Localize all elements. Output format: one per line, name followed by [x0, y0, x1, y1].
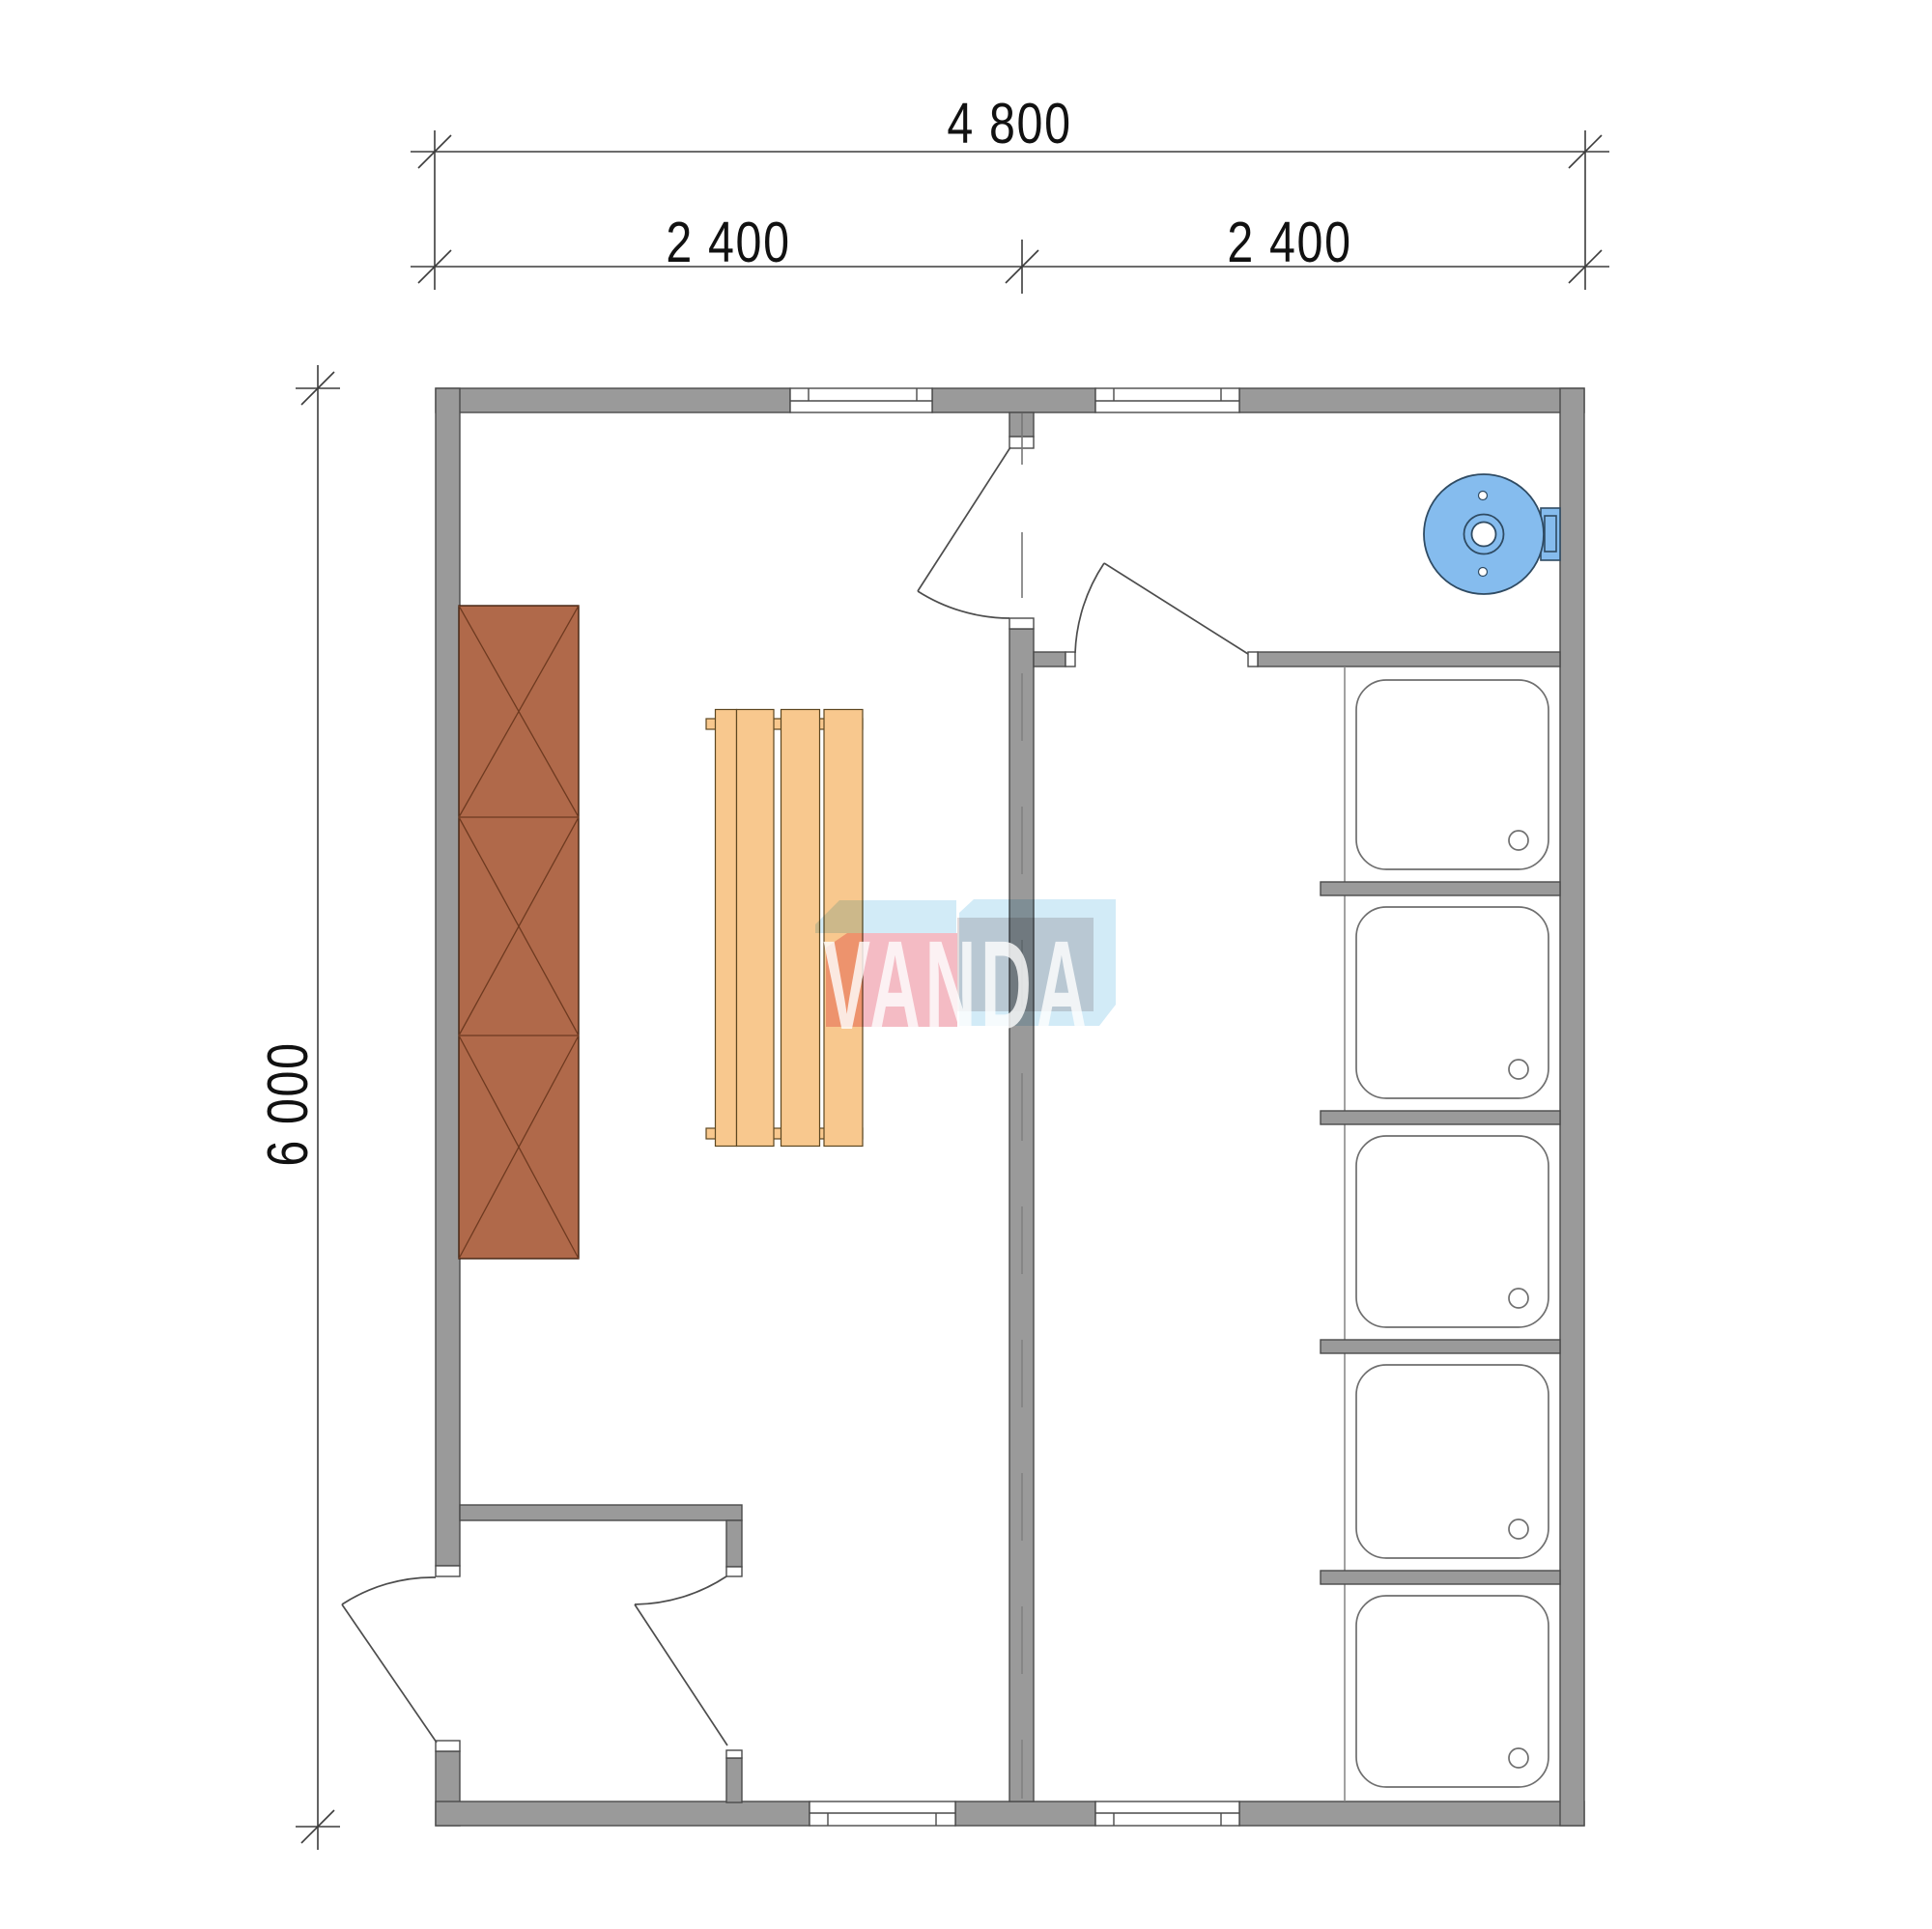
- svg-text:4 800: 4 800: [947, 93, 1071, 156]
- svg-text:VANDA: VANDA: [823, 916, 1092, 1057]
- svg-text:2 400: 2 400: [1227, 212, 1351, 275]
- svg-text:2 400: 2 400: [666, 212, 790, 275]
- svg-text:6 000: 6 000: [257, 1041, 321, 1166]
